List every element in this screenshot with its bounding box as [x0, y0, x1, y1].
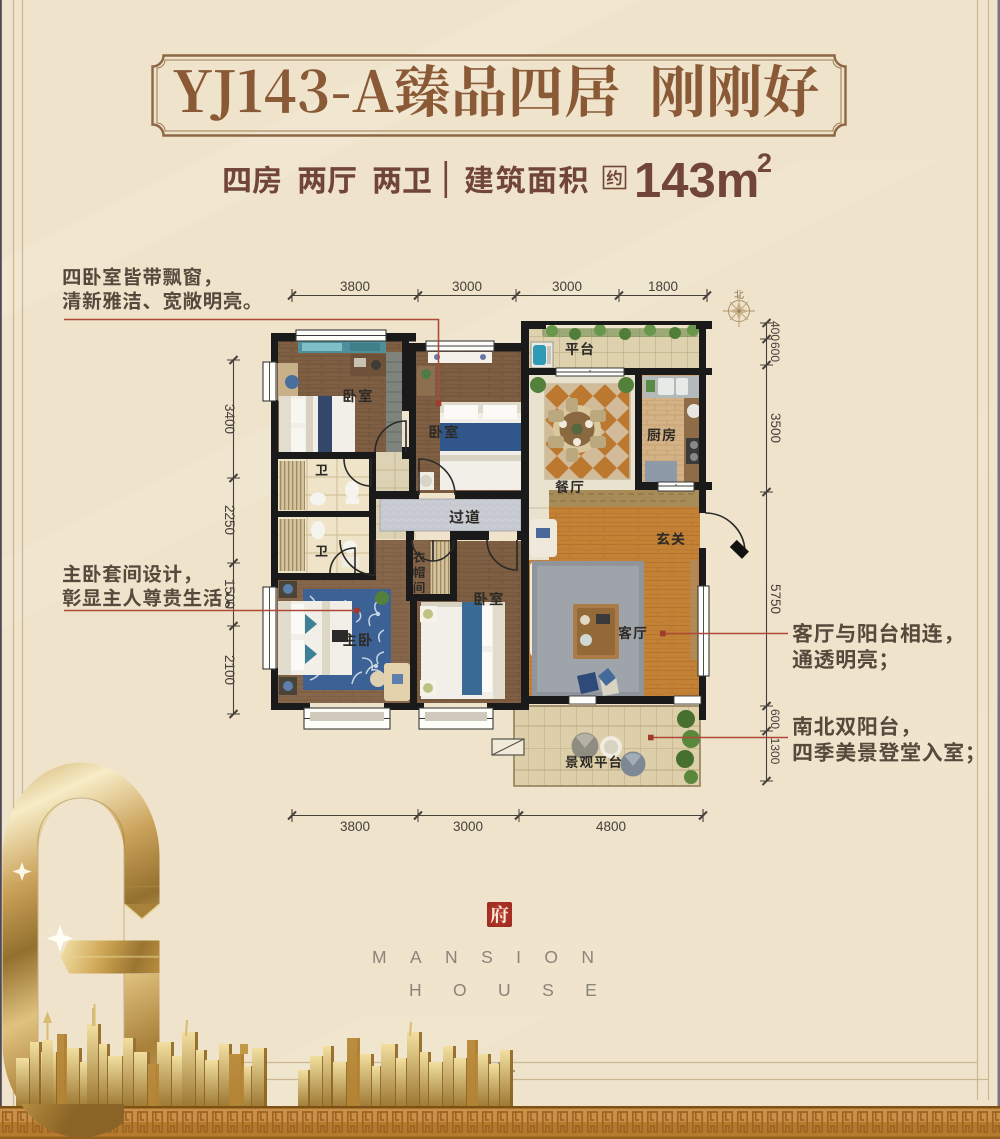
svg-text:3000: 3000 [552, 279, 582, 294]
svg-text:5750: 5750 [768, 584, 783, 614]
svg-text:1300: 1300 [768, 738, 782, 765]
svg-text:2100: 2100 [222, 655, 237, 685]
svg-text:2250: 2250 [222, 505, 237, 535]
svg-text:3800: 3800 [340, 279, 370, 294]
svg-text:MANSION: MANSION [372, 947, 617, 967]
svg-text:600: 600 [768, 342, 782, 362]
svg-text:3000: 3000 [452, 279, 482, 294]
svg-text:600: 600 [768, 709, 782, 729]
svg-text:2: 2 [757, 148, 772, 178]
svg-text:3800: 3800 [340, 819, 370, 834]
svg-text:3400: 3400 [222, 404, 237, 434]
svg-text:143m: 143m [634, 154, 759, 208]
svg-text:HOUSE: HOUSE [409, 980, 628, 1000]
svg-text:1500: 1500 [222, 579, 237, 609]
svg-text:3000: 3000 [453, 819, 483, 834]
svg-text:400: 400 [768, 321, 782, 341]
svg-text:1800: 1800 [648, 279, 678, 294]
svg-text:3500: 3500 [768, 413, 783, 443]
svg-text:4800: 4800 [596, 819, 626, 834]
